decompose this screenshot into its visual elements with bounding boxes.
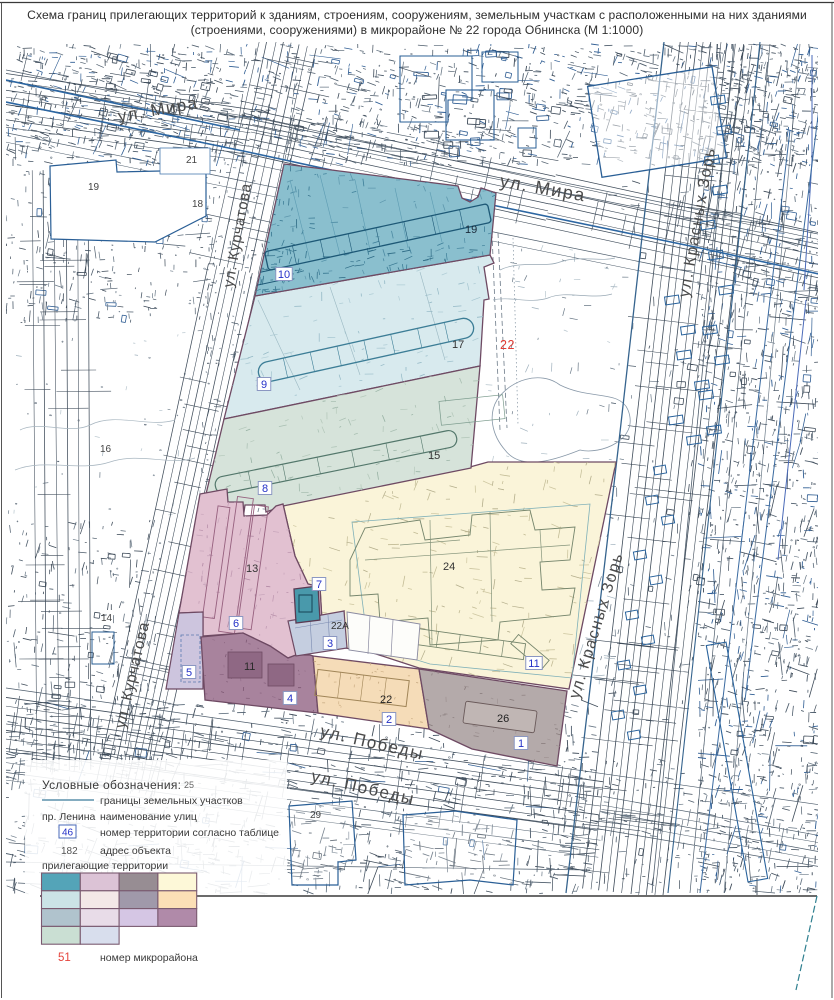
svg-text:8: 8 xyxy=(262,483,268,495)
svg-text:46: 46 xyxy=(62,828,74,839)
svg-text:номер территории согласно табл: номер территории согласно таблице xyxy=(100,827,279,839)
svg-text:15: 15 xyxy=(428,450,440,462)
svg-text:24: 24 xyxy=(443,561,455,573)
svg-text:(строениями, сооружениями) в м: (строениями, сооружениями) в микрорайоне… xyxy=(191,23,644,37)
svg-text:11: 11 xyxy=(244,661,255,673)
svg-text:182: 182 xyxy=(61,846,78,857)
svg-text:51: 51 xyxy=(58,952,71,964)
svg-text:номер микрорайона: номер микрорайона xyxy=(100,952,198,964)
svg-text:4: 4 xyxy=(287,693,293,705)
svg-text:14: 14 xyxy=(101,613,113,624)
svg-text:5: 5 xyxy=(186,667,192,679)
svg-text:6: 6 xyxy=(233,618,239,630)
svg-text:22А: 22А xyxy=(331,621,349,632)
svg-text:Условные обозначения:: Условные обозначения: xyxy=(42,778,181,792)
svg-text:11: 11 xyxy=(528,658,539,670)
svg-text:25: 25 xyxy=(184,780,194,790)
svg-text:18: 18 xyxy=(192,199,204,210)
svg-text:19: 19 xyxy=(465,224,477,236)
svg-text:16: 16 xyxy=(100,444,112,455)
svg-text:10: 10 xyxy=(278,269,290,281)
svg-text:17: 17 xyxy=(452,339,464,351)
svg-text:19: 19 xyxy=(88,182,100,193)
svg-text:пр. Ленина: пр. Ленина xyxy=(42,811,96,823)
svg-text:13: 13 xyxy=(246,563,258,575)
svg-text:1: 1 xyxy=(518,738,524,750)
svg-text:2: 2 xyxy=(386,714,392,726)
svg-text:22: 22 xyxy=(500,338,515,352)
svg-text:границы земельных участков: границы земельных участков xyxy=(100,795,243,807)
svg-text:9: 9 xyxy=(261,379,267,391)
svg-text:22: 22 xyxy=(380,694,392,706)
svg-text:26: 26 xyxy=(497,713,509,725)
svg-text:29: 29 xyxy=(310,810,322,821)
svg-text:прилегающие территории: прилегающие территории xyxy=(42,860,168,872)
svg-text:Схема границ прилегающих терри: Схема границ прилегающих территорий к зд… xyxy=(27,8,807,22)
svg-text:3: 3 xyxy=(327,638,333,650)
svg-text:7: 7 xyxy=(316,579,322,591)
svg-text:21: 21 xyxy=(186,155,198,166)
svg-text:адрес объекта: адрес объекта xyxy=(100,845,171,857)
svg-text:наименование улиц: наименование улиц xyxy=(100,811,197,823)
